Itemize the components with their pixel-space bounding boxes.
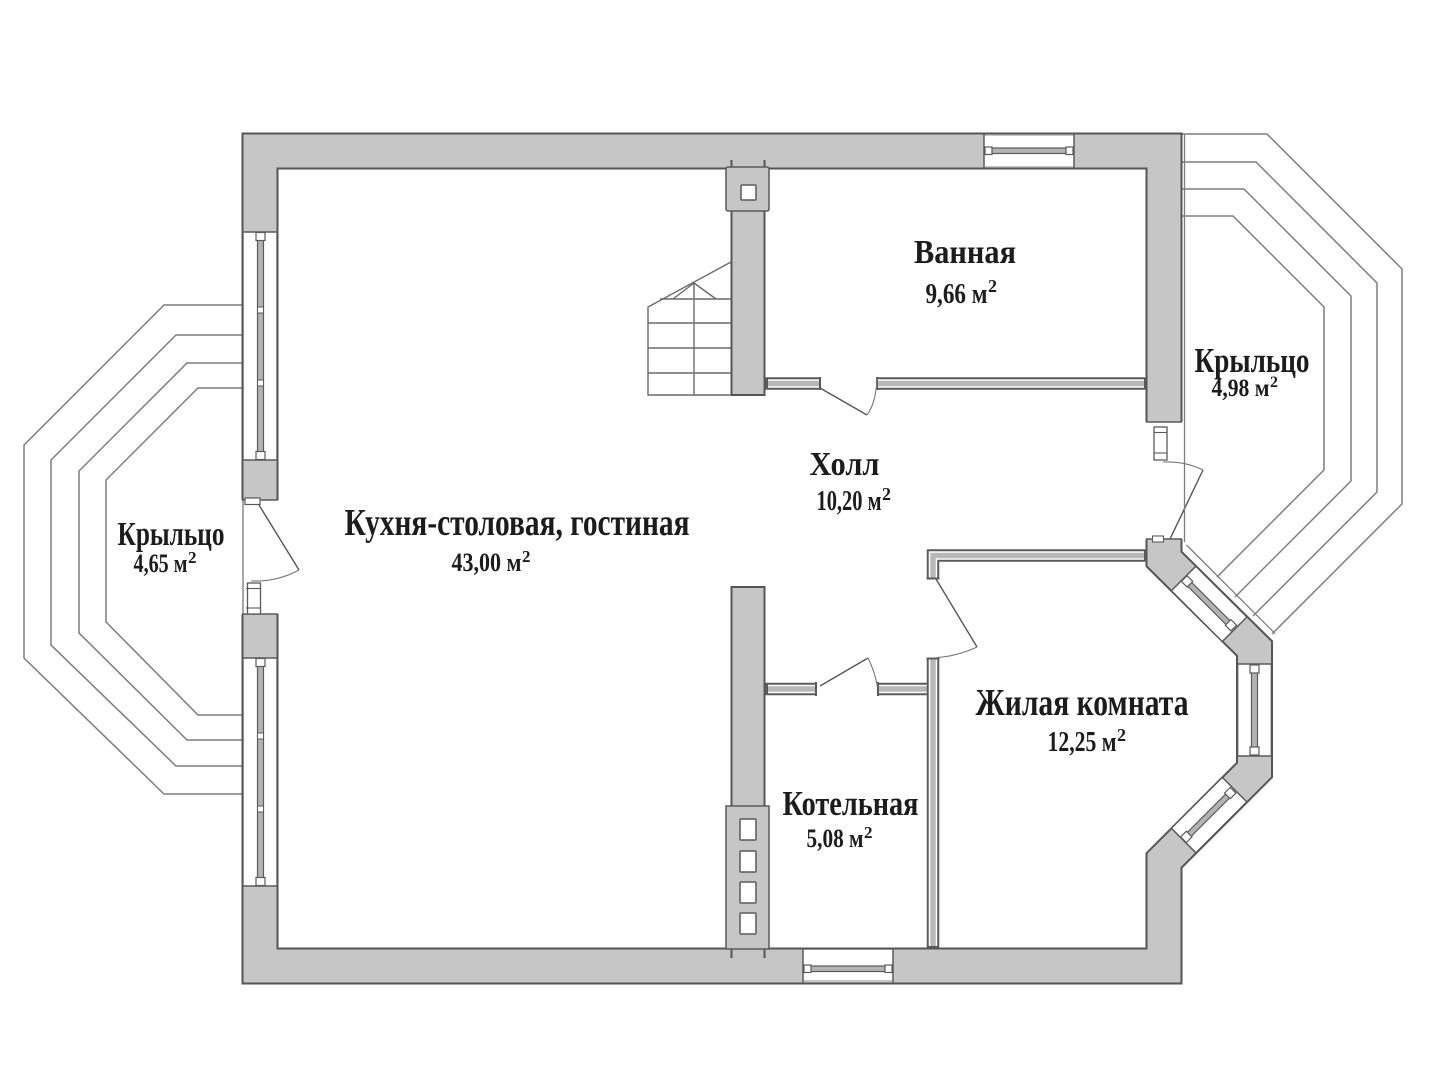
svg-text:2: 2 [188, 548, 197, 567]
svg-text:10,20 м: 10,20 м [817, 486, 882, 517]
svg-text:12,25 м: 12,25 м [1048, 727, 1117, 758]
svg-text:Холл: Холл [810, 446, 880, 483]
svg-text:5,08 м: 5,08 м [807, 824, 864, 853]
svg-text:Крыльцо: Крыльцо [118, 516, 225, 553]
svg-text:2: 2 [988, 276, 997, 296]
svg-text:Ванная: Ванная [914, 234, 1016, 271]
svg-text:2: 2 [522, 547, 531, 566]
svg-text:2: 2 [1270, 374, 1278, 391]
svg-text:2: 2 [882, 484, 891, 504]
svg-text:Жилая комната: Жилая комната [976, 682, 1189, 724]
svg-text:Кухня-столовая, гостиная: Кухня-столовая, гостиная [345, 502, 690, 544]
svg-text:4,98 м: 4,98 м [1212, 375, 1270, 402]
svg-text:2: 2 [864, 823, 873, 842]
svg-text:9,66 м: 9,66 м [926, 279, 988, 310]
svg-text:Котельная: Котельная [783, 784, 919, 823]
svg-text:4,65 м: 4,65 м [134, 549, 188, 578]
svg-text:2: 2 [1117, 725, 1126, 745]
svg-text:43,00 м: 43,00 м [452, 548, 522, 577]
